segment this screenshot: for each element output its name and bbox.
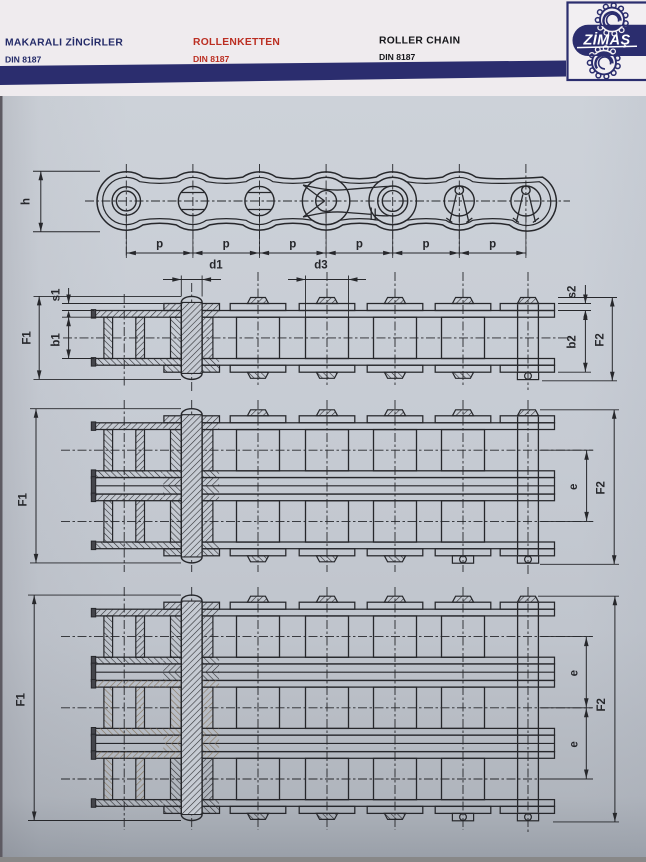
svg-text:s2: s2 (567, 286, 579, 299)
svg-text:F2: F2 (595, 333, 607, 346)
svg-text:F2: F2 (596, 698, 608, 711)
svg-text:DIN 8187: DIN 8187 (379, 52, 416, 62)
svg-text:MAKARALI ZİNCİRLER: MAKARALI ZİNCİRLER (5, 36, 123, 49)
svg-text:b2: b2 (567, 335, 579, 348)
svg-text:F1: F1 (22, 331, 34, 345)
svg-text:DIN 8187: DIN 8187 (193, 54, 230, 64)
svg-text:p: p (156, 239, 163, 251)
svg-text:DIN 8187: DIN 8187 (5, 55, 42, 65)
svg-text:b1: b1 (51, 333, 63, 347)
svg-text:p: p (356, 239, 363, 251)
svg-text:p: p (489, 239, 496, 251)
svg-text:h: h (21, 198, 33, 205)
svg-text:p: p (422, 239, 429, 251)
svg-text:d1: d1 (209, 260, 223, 272)
svg-text:ROLLENKETTEN: ROLLENKETTEN (193, 37, 280, 48)
svg-text:p: p (289, 239, 296, 251)
svg-text:p: p (223, 239, 230, 251)
svg-text:e: e (569, 741, 581, 747)
svg-text:e: e (569, 670, 581, 676)
svg-text:ROLLER CHAIN: ROLLER CHAIN (379, 36, 460, 47)
svg-text:d3: d3 (314, 260, 327, 272)
svg-text:s1: s1 (51, 288, 63, 301)
svg-text:F1: F1 (18, 492, 30, 506)
svg-text:F1: F1 (16, 692, 28, 706)
svg-text:e: e (568, 484, 580, 490)
svg-text:F2: F2 (596, 481, 608, 494)
